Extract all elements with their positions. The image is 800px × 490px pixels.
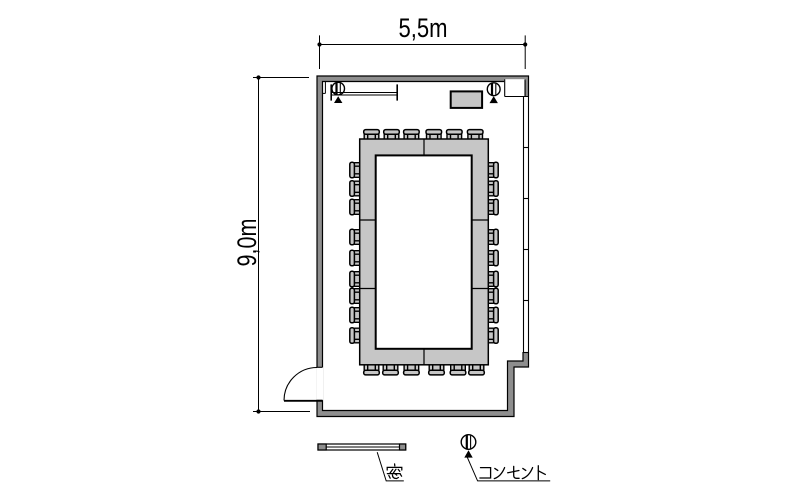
svg-text:9,0m: 9,0m [231,219,262,267]
svg-text:5,5m: 5,5m [399,12,448,43]
